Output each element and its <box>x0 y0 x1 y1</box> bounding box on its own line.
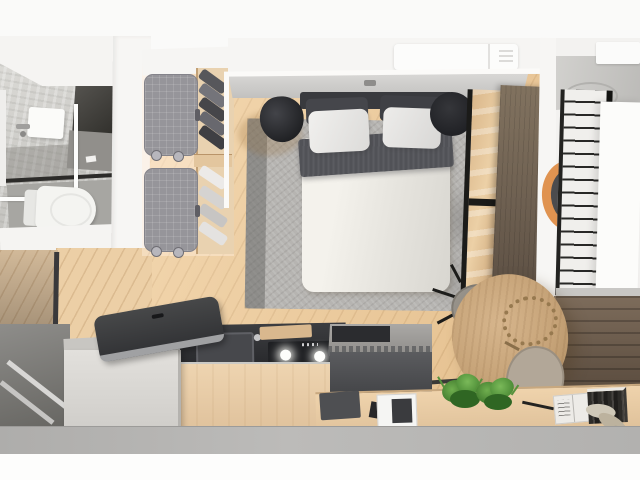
unit-foot-right <box>173 151 184 162</box>
sink-faucet <box>16 124 30 129</box>
plant-blob <box>484 394 512 410</box>
storage-unit-bottom <box>144 168 198 252</box>
tray-dark-object <box>392 398 413 423</box>
bathroom-sink <box>27 107 65 139</box>
ac-vent-detail <box>499 50 513 64</box>
book-spine-line <box>572 395 575 422</box>
gray-cabinet <box>64 350 181 432</box>
island-hob-dark <box>332 326 390 342</box>
tray-handle <box>151 313 164 319</box>
adjacent-ac-unit <box>596 42 640 64</box>
white-tray <box>376 393 417 428</box>
pillow-white-left <box>308 108 370 153</box>
bottom-white-margin <box>0 454 640 480</box>
air-conditioner <box>394 44 518 70</box>
bathroom-left-wall <box>0 90 6 186</box>
glass-frame-vertical <box>224 72 229 208</box>
toilet-seat-line <box>49 192 93 228</box>
sink-faucet-knob <box>20 131 26 137</box>
cutting-board <box>259 324 312 340</box>
hob-controls <box>302 343 318 346</box>
white-wall-panel <box>595 101 640 296</box>
unit-foot-right <box>173 247 184 258</box>
unit-handle <box>195 205 200 217</box>
unit-handle <box>195 109 200 121</box>
book-print <box>557 399 570 416</box>
storage-unit-top <box>144 74 198 156</box>
unit-foot-left <box>151 246 162 257</box>
ledge-dark-mat <box>319 391 361 421</box>
apartment-render <box>0 0 640 480</box>
potted-plant-2 <box>474 376 516 414</box>
ac-seam <box>488 44 490 70</box>
wall-vent <box>364 80 376 86</box>
unit-foot-left <box>151 150 162 161</box>
